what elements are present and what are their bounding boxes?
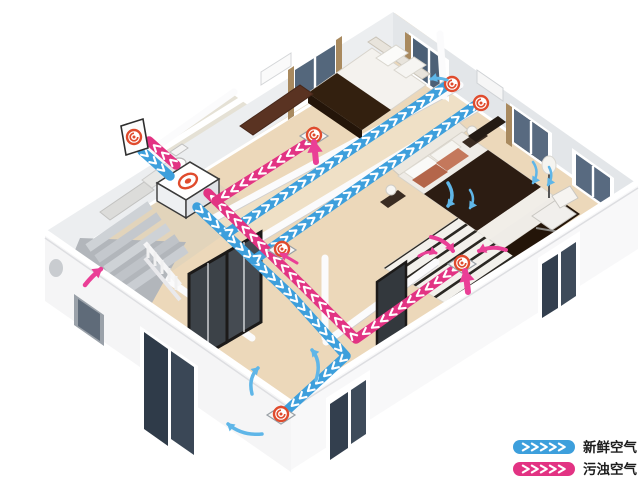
- outdoor-wall-vent: [121, 119, 148, 155]
- vent-dot: [133, 136, 136, 139]
- vent-dot: [313, 134, 316, 137]
- vent-dot: [451, 83, 454, 86]
- outdoor-louver: [49, 259, 63, 277]
- legend-item-fresh-air: 新鲜空气: [513, 439, 637, 455]
- supply-diffuser-master-bedroom: [474, 96, 488, 110]
- vent-dot: [280, 413, 283, 416]
- vent-dot: [461, 262, 464, 265]
- legend: 新鲜空气 污浊空气: [513, 439, 637, 477]
- legend-label-polluted: 污浊空气: [583, 461, 637, 477]
- vent-dot: [480, 102, 483, 105]
- master-lamp-left: [386, 185, 396, 195]
- ventilation-diagram: 新鲜空气 污浊空气: [0, 0, 640, 485]
- vent-dot: [281, 248, 284, 251]
- legend-item-polluted-air: 污浊空气: [513, 461, 637, 477]
- legend-label-fresh: 新鲜空气: [583, 439, 637, 455]
